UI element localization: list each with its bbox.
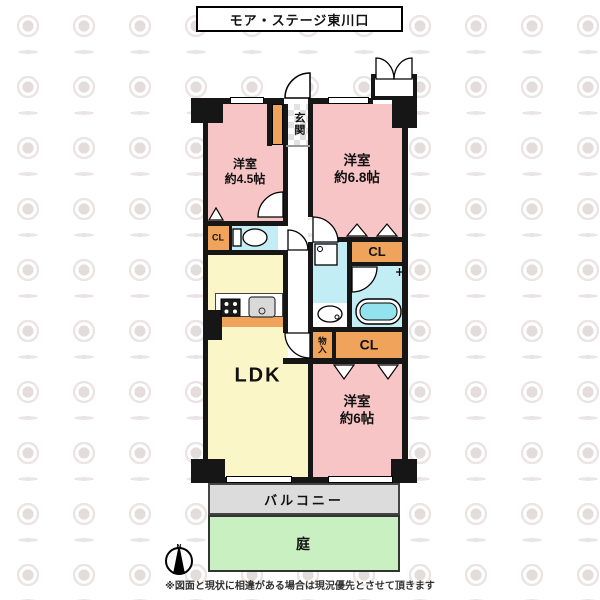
plan-symbols-layer: N [0, 0, 600, 600]
toilet-bowl [243, 229, 267, 246]
closet-fold-mark [347, 224, 367, 236]
room6-name: 洋室 [340, 394, 375, 411]
room45-door-arc [258, 192, 283, 217]
stove-burner [225, 302, 229, 306]
toilet-tank [233, 229, 241, 246]
stove-burner [233, 302, 237, 306]
closet-fold-mark [334, 365, 354, 379]
room68-door-arc [313, 217, 338, 242]
closet-top-right-label: CL [368, 244, 385, 260]
room6-label: 洋室 約6帖 [340, 394, 375, 428]
room45-name: 洋室 [225, 157, 266, 172]
property-title-box: モア・ステージ東川口 [196, 6, 403, 32]
ldk-door-arc [285, 333, 310, 358]
room45-label: 洋室 約4.5帖 [225, 157, 266, 187]
compass-north-label: N [176, 544, 181, 551]
room45-size: 約4.5帖 [225, 172, 266, 187]
closet-fold-mark [377, 224, 397, 236]
toilet-door-arc [288, 230, 308, 250]
closet-fold-mark [378, 365, 398, 379]
stove [221, 299, 240, 316]
porch-double-door-left [376, 58, 394, 79]
bath-faucet-icon [396, 268, 403, 276]
storage-label: 物入 [317, 337, 328, 354]
closet-small-label: CL [212, 232, 224, 243]
room68-size: 約6.8帖 [334, 170, 380, 187]
floorplan-page: モア・ステージ東川口 バルコニー 庭 [0, 0, 600, 600]
stove-burner [225, 310, 229, 314]
closet-bottom-label: CL [360, 336, 379, 354]
ldk-label: LDK [234, 364, 281, 389]
room6-size: 約6帖 [340, 411, 375, 428]
entrance-door-arc [285, 73, 310, 98]
room68-label: 洋室 約6.8帖 [334, 153, 380, 187]
property-title: モア・ステージ東川口 [230, 10, 370, 29]
room68-name: 洋室 [334, 153, 380, 170]
disclaimer-text: ※図面と現状に相違がある場合は現況優先とさせて頂きます [150, 577, 450, 592]
porch-double-door-right [394, 58, 412, 79]
bathroom-door-arc [352, 267, 377, 292]
bathtub-inner [360, 303, 397, 320]
stove-burner [233, 310, 237, 314]
genkan-label: 玄関 [291, 112, 305, 136]
closet-fold-mark [209, 208, 223, 220]
wash-basin [318, 306, 342, 322]
